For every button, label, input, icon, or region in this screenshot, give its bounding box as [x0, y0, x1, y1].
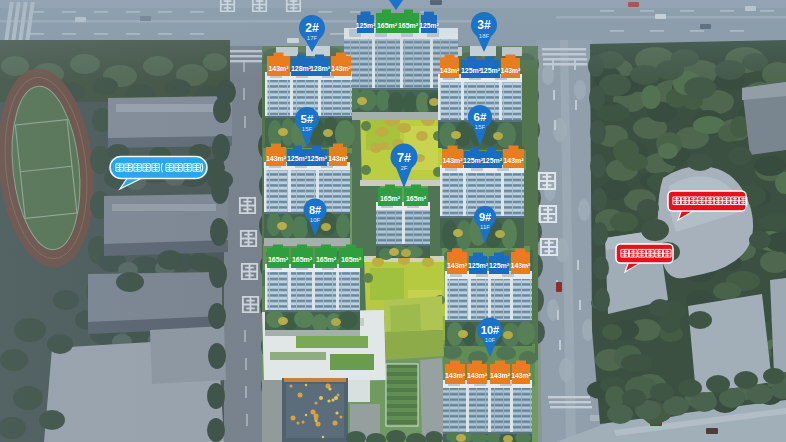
svg-text:143m²: 143m²: [511, 372, 531, 379]
svg-text:165m²: 165m²: [268, 256, 289, 263]
svg-text:10F: 10F: [485, 337, 496, 343]
svg-text:15F: 15F: [302, 126, 313, 132]
svg-text:165m²: 165m²: [316, 256, 337, 263]
svg-text:143m²: 143m²: [467, 372, 488, 379]
svg-text:3#: 3#: [477, 18, 491, 32]
svg-text:143m²: 143m²: [490, 372, 511, 379]
svg-text:7#: 7#: [397, 151, 411, 165]
svg-text:125m²: 125m²: [489, 262, 510, 269]
svg-text:6#: 6#: [474, 111, 487, 123]
svg-text:143m²: 143m²: [331, 65, 351, 72]
svg-text:125m²: 125m²: [480, 67, 501, 74]
svg-text:10#: 10#: [481, 324, 499, 336]
svg-text:8#: 8#: [309, 204, 321, 216]
svg-text:143m²: 143m²: [511, 262, 531, 269]
svg-text:165m²: 165m²: [406, 195, 427, 202]
svg-text:18F: 18F: [479, 33, 490, 39]
svg-text:11F: 11F: [480, 224, 490, 230]
svg-text:125m²: 125m²: [461, 67, 482, 74]
svg-text:9#: 9#: [479, 211, 491, 223]
svg-text:125m²: 125m²: [482, 157, 503, 164]
svg-text:143m²: 143m²: [328, 155, 348, 162]
svg-text:2#: 2#: [305, 21, 319, 35]
svg-text:143m²: 143m²: [501, 67, 521, 74]
svg-text:165m²: 165m²: [341, 256, 362, 263]
svg-text:128m²: 128m²: [291, 65, 312, 72]
svg-text:125m²: 125m²: [419, 22, 439, 29]
svg-text:143m²: 143m²: [266, 155, 287, 162]
svg-text:165m²: 165m²: [292, 256, 313, 263]
svg-text:143m²: 143m²: [440, 67, 460, 74]
svg-text:17F: 17F: [307, 35, 318, 41]
svg-text:143m²: 143m²: [447, 262, 468, 269]
svg-text:143m²: 143m²: [445, 372, 466, 379]
svg-text:125m²: 125m²: [307, 155, 328, 162]
svg-text:165m²: 165m²: [380, 195, 401, 202]
svg-text:5#: 5#: [301, 113, 314, 125]
svg-text:125m²: 125m²: [356, 22, 376, 29]
svg-text:2F: 2F: [400, 164, 407, 171]
svg-text:125m²: 125m²: [463, 157, 484, 164]
svg-text:10F: 10F: [310, 217, 321, 223]
svg-text:165m²: 165m²: [377, 22, 398, 29]
svg-text:125m²: 125m²: [287, 155, 308, 162]
svg-text:125m²: 125m²: [468, 262, 489, 269]
svg-text:143m²: 143m²: [503, 157, 524, 164]
svg-text:128m²: 128m²: [310, 65, 331, 72]
svg-text:143m²: 143m²: [442, 157, 463, 164]
svg-text:143m²: 143m²: [268, 65, 289, 72]
svg-text:165m²: 165m²: [398, 22, 419, 29]
svg-text:15F: 15F: [475, 124, 486, 130]
